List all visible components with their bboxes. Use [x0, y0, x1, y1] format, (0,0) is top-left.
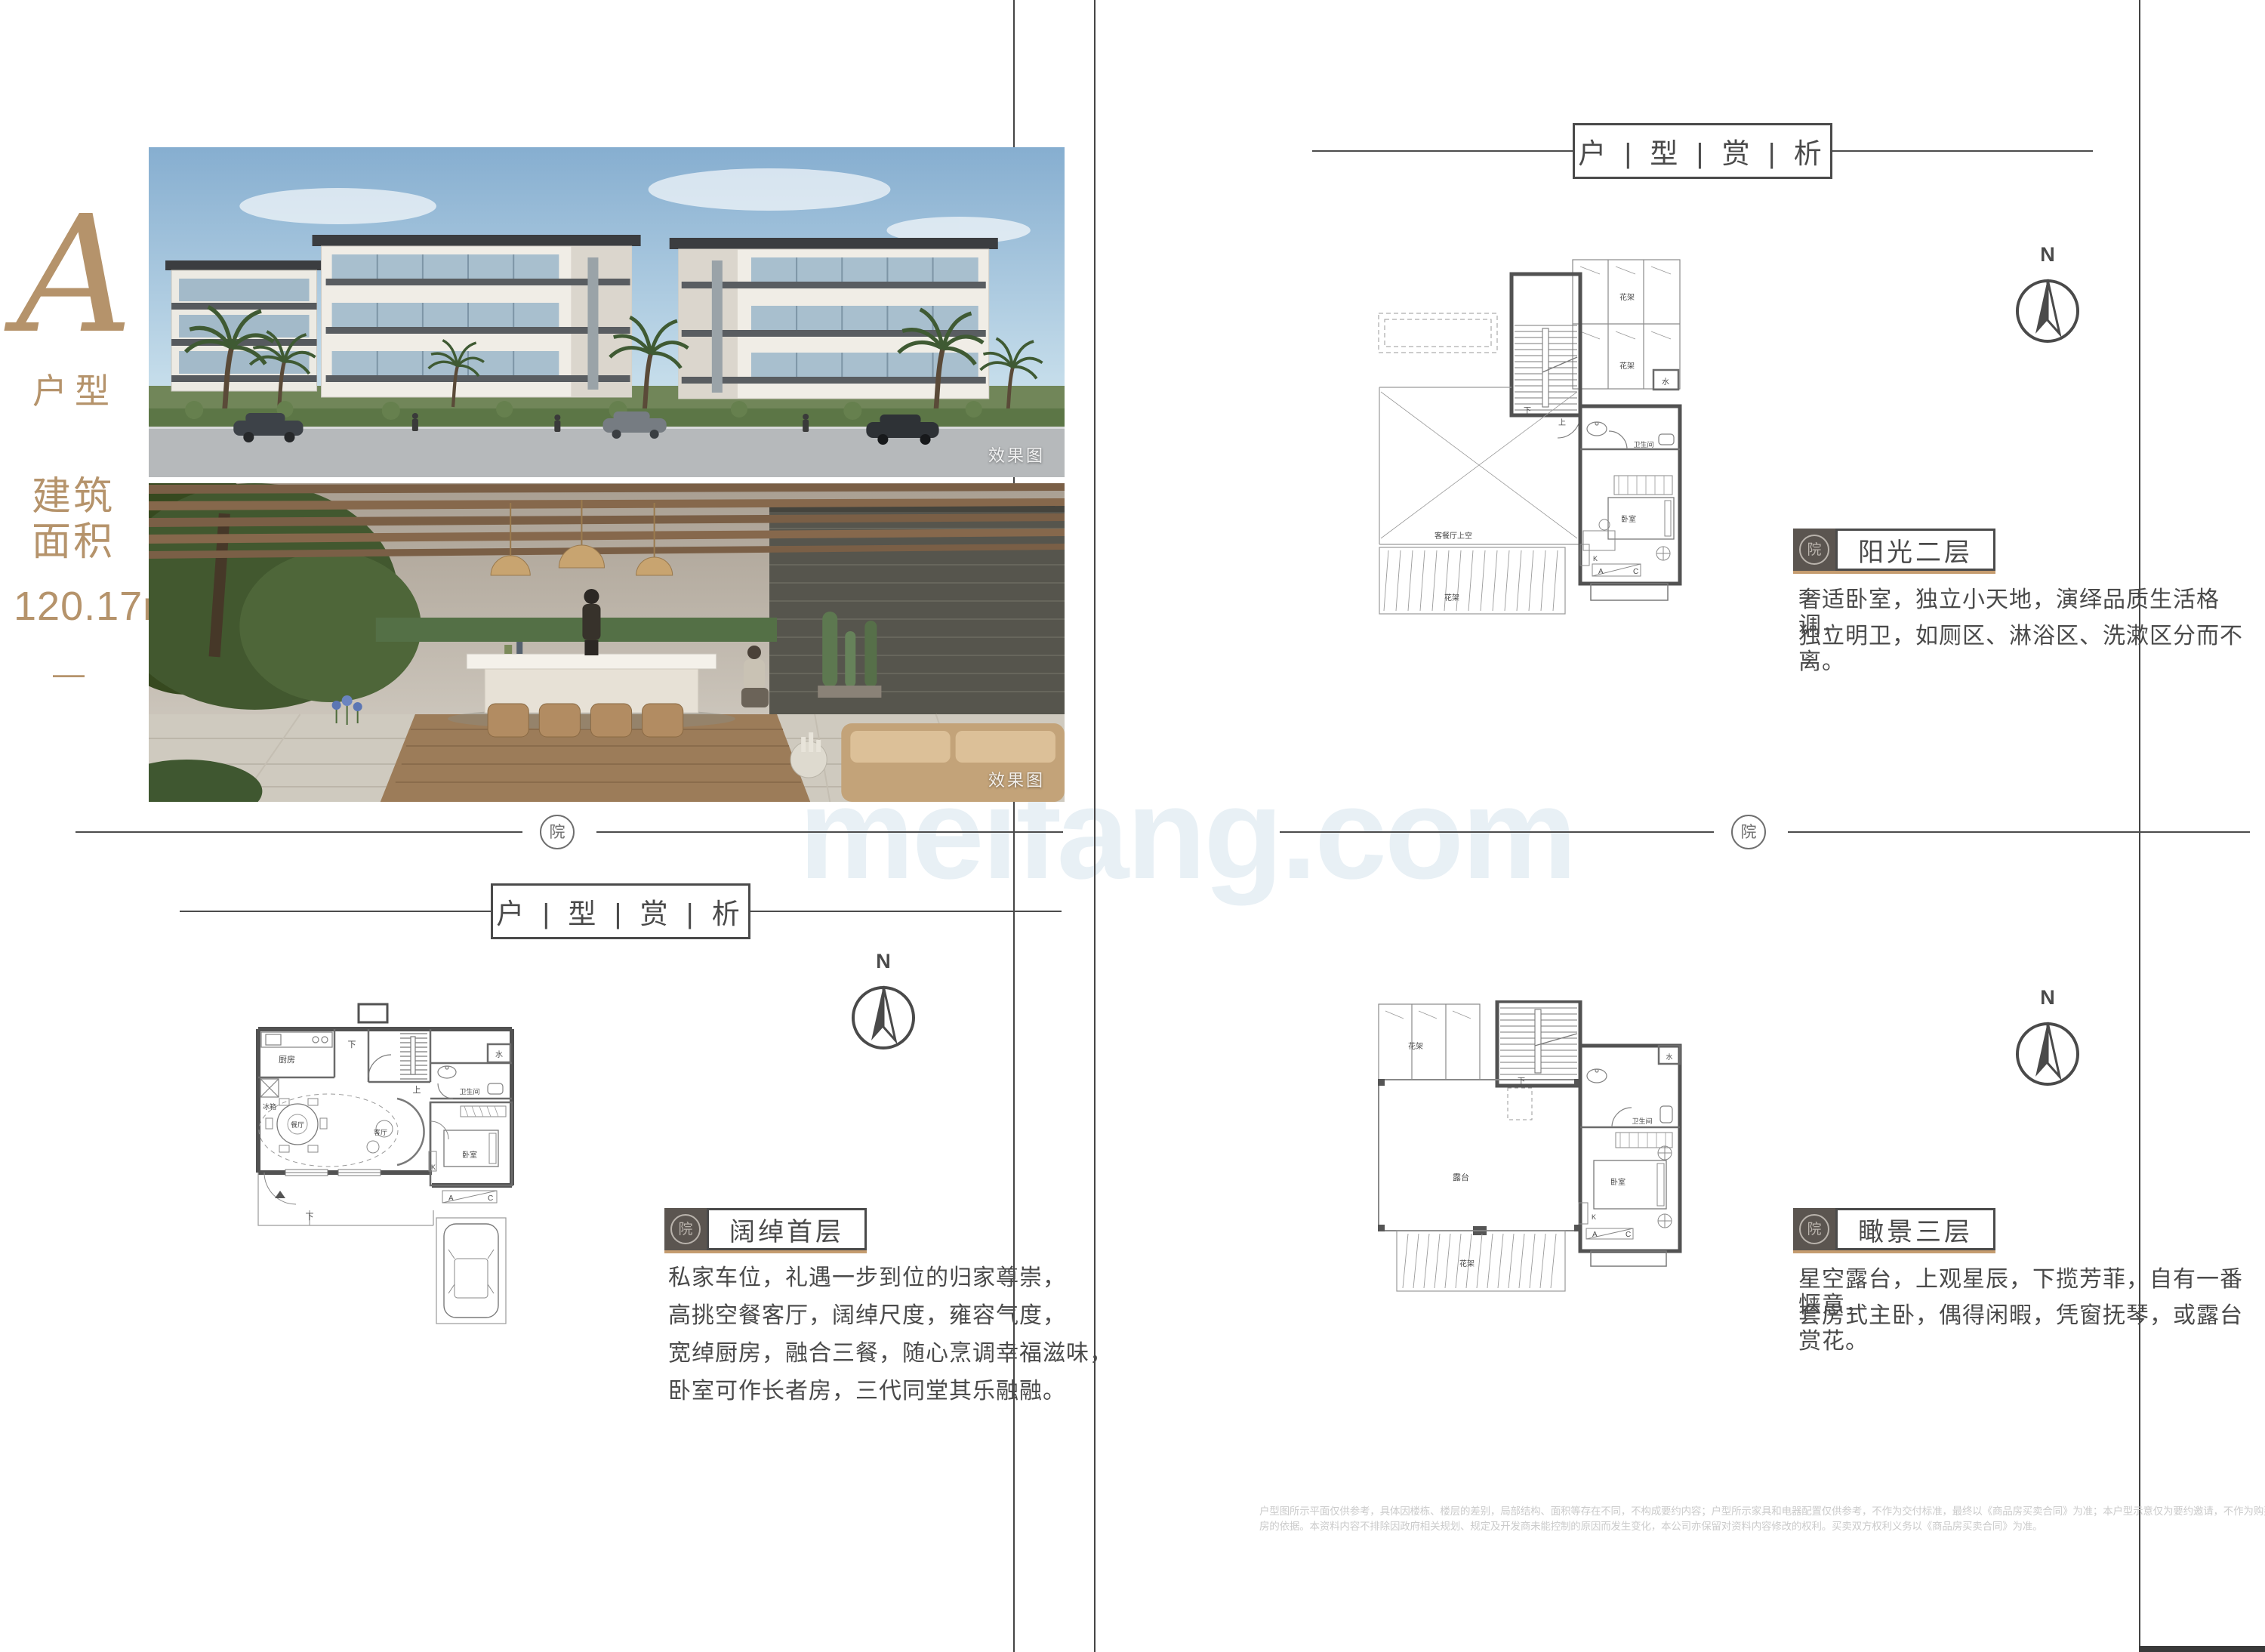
render-tag: 效果图	[988, 767, 1045, 791]
room-label-flower-rack: 花架	[1619, 361, 1635, 371]
courtyard-render-photo: 效果图	[149, 483, 1065, 802]
entry-marker	[275, 1191, 285, 1198]
room-label-c: C	[1633, 568, 1638, 576]
room-label-bedroom: 卧室	[1621, 514, 1636, 524]
outer-walls	[258, 1029, 512, 1185]
chip-seal-icon: 院	[1793, 529, 1835, 571]
header-line-left	[1312, 150, 1573, 152]
exterior-render-photo: 效果图	[149, 147, 1065, 477]
terrace	[1378, 1079, 1581, 1235]
section-chip-third-floor: 院 瞰景三层	[1793, 1208, 1995, 1253]
room-label-terrace: 露台	[1453, 1172, 1469, 1182]
exterior-render-art	[149, 147, 1065, 477]
compass: N	[2010, 982, 2085, 1095]
section-desc-first-floor: 私家车位，礼遇一步到位的归家尊崇， 高挑空餐客厅，阔绰尺度，雍容气度， 宽绰厨房…	[668, 1265, 1113, 1416]
desc-line: 卧室可作长者房，三代同堂其乐融融。	[668, 1379, 1113, 1416]
stairs	[1500, 1008, 1577, 1074]
room-label-void: 客餐厅上空	[1434, 531, 1472, 541]
room-label-a: A	[1592, 1231, 1598, 1239]
room-label-down: 下	[1524, 407, 1531, 415]
room-label-water: 水	[1662, 378, 1669, 387]
divider-line	[1788, 831, 2250, 833]
unit-type-letter: A	[11, 195, 139, 356]
header-line-right	[750, 911, 1062, 912]
room-label-water: 水	[495, 1050, 503, 1059]
plan-header-right: 户 | 型 | 赏 | 析	[1573, 123, 1832, 179]
stairs	[1515, 325, 1580, 438]
room-label-k: K	[1593, 555, 1598, 562]
compass-n-label: N	[876, 950, 891, 972]
section-title-second-floor: 阳光二层	[1835, 529, 1995, 571]
room-label-a: A	[1598, 568, 1604, 576]
room-label-c: C	[488, 1194, 493, 1203]
flower-rack-grid	[1379, 1004, 1480, 1080]
divider-line	[1280, 831, 1714, 833]
yard-seal-icon: 院	[540, 815, 575, 849]
compass: N	[2010, 239, 2085, 352]
bath-fixtures	[1580, 422, 1680, 449]
render-tag: 效果图	[988, 442, 1045, 467]
floorplan-second-floor: 花架 花架 下 上 客餐厅上空 花架 卫生间 水 卧室 K A C	[1378, 259, 1684, 621]
flower-rack-bottom	[1397, 1231, 1565, 1291]
header-line-right	[1832, 150, 2093, 152]
room-label-c: C	[1626, 1231, 1631, 1239]
porch	[1591, 1251, 1666, 1266]
area-label: 建筑 面积	[32, 474, 115, 565]
desc-line: 套房式主卧，偶得闲暇，凭窗抚琴，或露台赏花。	[1798, 1303, 2265, 1339]
desc-line: 高挑空餐客厅，阔绰尺度，雍容气度，	[668, 1303, 1113, 1341]
desc-line: 奢适卧室，独立小天地，演绎品质生活格调，	[1798, 587, 2265, 624]
desc-line: 私家车位，礼遇一步到位的归家尊崇，	[668, 1265, 1113, 1303]
room-label-down: 下	[348, 1040, 356, 1049]
room-label-flower-rack: 花架	[1619, 292, 1635, 302]
room-label-bedroom: 卧室	[462, 1150, 477, 1160]
seal-char: 院	[670, 1214, 701, 1244]
compass-n-label: N	[2040, 243, 2055, 266]
room-label-kitchen: 厨房	[279, 1055, 295, 1065]
floorplan-third-floor: 花架 下 露台 花架 卫生间 水 卧室 K A C	[1378, 1000, 1684, 1299]
bedroom-furniture	[429, 1106, 506, 1171]
mid-hedge	[376, 618, 777, 642]
bath-fixtures	[1580, 1069, 1680, 1127]
stairs	[368, 1034, 427, 1079]
room-label-flower-rack: 花架	[1444, 593, 1459, 603]
desc-line: 独立明卫，如厕区、淋浴区、洗漱区分而不离。	[1798, 624, 2265, 660]
void-area	[1379, 387, 1580, 544]
section-chip-second-floor: 院 阳光二层	[1793, 529, 1995, 574]
disclaimer: 户型图所示平面仅供参考，具体因楼栋、楼层的差别，局部结构、面积等存在不同，不构成…	[1259, 1504, 2260, 1533]
room-label-living: 客厅	[374, 1128, 387, 1136]
interior-walls	[258, 1029, 512, 1185]
room-label-up: 上	[1558, 418, 1566, 427]
brochure-page: { "brand": { "type_letter": "A", "type_l…	[0, 0, 2265, 1652]
yard-seal-icon: 院	[1731, 815, 1766, 849]
divider-line	[596, 831, 1063, 833]
page-edge-line	[2139, 0, 2140, 1652]
flower-rack-bottom	[1379, 547, 1565, 614]
area-number: 120.17	[14, 584, 143, 629]
entry-door-arc	[264, 1173, 296, 1204]
floorplan-first-floor: 厨房 冰箱 下 上 卫生间 水 餐厅 客厅 卧室 K 下 A C	[219, 1000, 521, 1329]
room-label-down: 下	[1518, 1077, 1525, 1086]
section-chip-first-floor: 院 阔绰首层	[664, 1208, 867, 1253]
seal-char: 院	[1799, 1214, 1829, 1244]
section-title-first-floor: 阔绰首层	[707, 1208, 867, 1250]
balcony-dashed	[1379, 313, 1497, 353]
disclaimer-line2: 房的依据。本资料内容不排除因政府相关规划、规定及开发商未能控制的原因而发生变化，…	[1259, 1519, 2260, 1534]
compass: N	[846, 945, 921, 1059]
room-label-a: A	[448, 1194, 454, 1203]
desc-line: 宽绰厨房，融合三餐，随心烹调幸福滋味，	[668, 1341, 1113, 1379]
car-space	[436, 1218, 506, 1324]
standing-person	[582, 589, 600, 655]
room-label-k: K	[1592, 1213, 1596, 1221]
room-label-bathroom: 卫生间	[1632, 1117, 1652, 1125]
courtyard-render-art	[149, 483, 1065, 802]
section-title-third-floor: 瞰景三层	[1835, 1208, 1995, 1250]
room-label-k: K	[431, 1163, 436, 1171]
unit-type-label: 户型	[11, 364, 139, 414]
dash-mark: —	[53, 655, 85, 692]
corner-bar	[2139, 1646, 2265, 1652]
area-label-line1: 建筑	[32, 474, 115, 519]
kitchen-fixtures	[260, 1032, 332, 1097]
room-label-water: 水	[1666, 1053, 1672, 1061]
room-label-bedroom: 卧室	[1610, 1177, 1626, 1187]
header-line-left	[180, 911, 491, 912]
plan1-labels: 厨房 冰箱 下 上 卫生间 水 餐厅 客厅 卧室 K 下 A C	[263, 1040, 503, 1222]
portico	[359, 1004, 387, 1022]
chip-seal-icon: 院	[1793, 1208, 1835, 1250]
room-label-up: 上	[413, 1085, 421, 1095]
room-label-bathroom: 卫生间	[459, 1087, 479, 1096]
plan-header-left: 户 | 型 | 赏 | 析	[491, 883, 750, 939]
section-desc-second-floor: 奢适卧室，独立小天地，演绎品质生活格调， 独立明卫，如厕区、淋浴区、洗漱区分而不…	[1798, 587, 2265, 660]
seal-char: 院	[1799, 535, 1829, 565]
chip-seal-icon: 院	[664, 1208, 707, 1250]
room-label-down: 下	[306, 1213, 314, 1222]
desc-line: 星空露台，上观星辰，下揽芳菲，自有一番惬意，	[1798, 1267, 2265, 1303]
room-label-flower-rack: 花架	[1408, 1041, 1423, 1051]
porch	[1591, 584, 1668, 600]
area-label-line2: 面积	[32, 519, 115, 565]
section-desc-third-floor: 星空露台，上观星辰，下揽芳菲，自有一番惬意， 套房式主卧，偶得闲暇，凭窗抚琴，或…	[1798, 1267, 2265, 1339]
disclaimer-line1: 户型图所示平面仅供参考，具体因楼栋、楼层的差别，局部结构、面积等存在不同，不构成…	[1259, 1504, 2260, 1519]
building-left	[165, 260, 323, 391]
room-label-bathroom: 卫生间	[1633, 440, 1653, 448]
stair-landing-dashed	[1508, 1088, 1532, 1120]
room-label-flower-rack: 花架	[1459, 1259, 1475, 1268]
dining-living	[259, 1094, 424, 1167]
room-label-dining: 餐厅	[291, 1120, 304, 1129]
divider-line	[75, 831, 522, 833]
room-label-fridge: 冰箱	[263, 1102, 276, 1111]
front-yard	[258, 1173, 433, 1225]
building-b	[670, 238, 998, 399]
compass-n-label: N	[2040, 986, 2055, 1009]
